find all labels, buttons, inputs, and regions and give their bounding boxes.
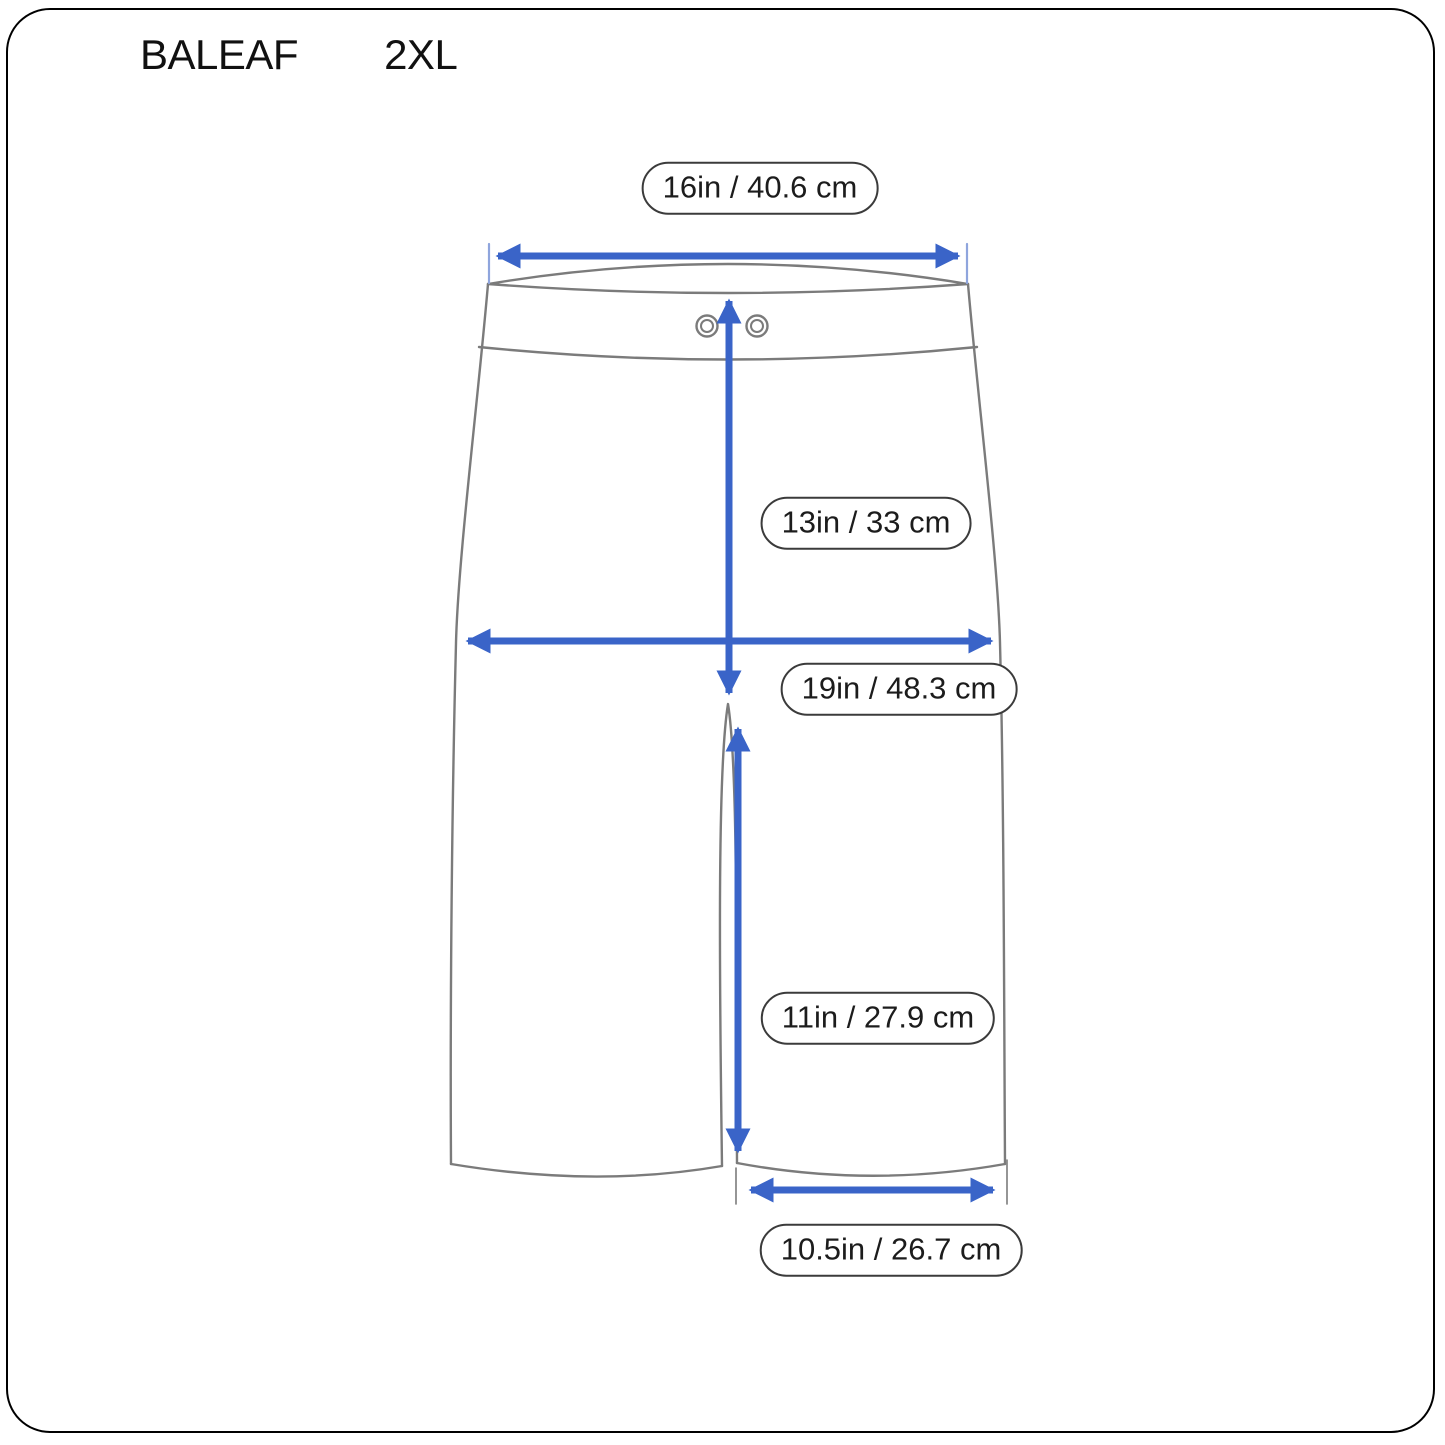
right-leg-hem — [737, 1163, 1005, 1176]
waist-opening-front-edge — [488, 284, 968, 293]
left-outer-seam — [451, 284, 488, 1164]
left-leg-hem — [451, 1164, 722, 1177]
waist-opening-top-edge — [488, 264, 968, 284]
left-grommet-inner-icon — [701, 320, 713, 332]
left-grommet-icon — [697, 316, 718, 337]
inseam-label: 11in / 27.9 cm — [761, 992, 995, 1045]
inner-leg-seams — [720, 704, 737, 1166]
right-grommet-icon — [747, 316, 768, 337]
shorts-measurement-drawing — [0, 0, 1445, 1445]
right-grommet-inner-icon — [751, 320, 763, 332]
measurement-diagram-page: BALEAF 2XL — [0, 0, 1445, 1445]
hip-width-label: 19in / 48.3 cm — [781, 663, 1018, 716]
leg-opening-label: 10.5in / 26.7 cm — [760, 1224, 1023, 1277]
waist-width-label: 16in / 40.6 cm — [642, 162, 879, 215]
front-rise-label: 13in / 33 cm — [761, 497, 972, 550]
